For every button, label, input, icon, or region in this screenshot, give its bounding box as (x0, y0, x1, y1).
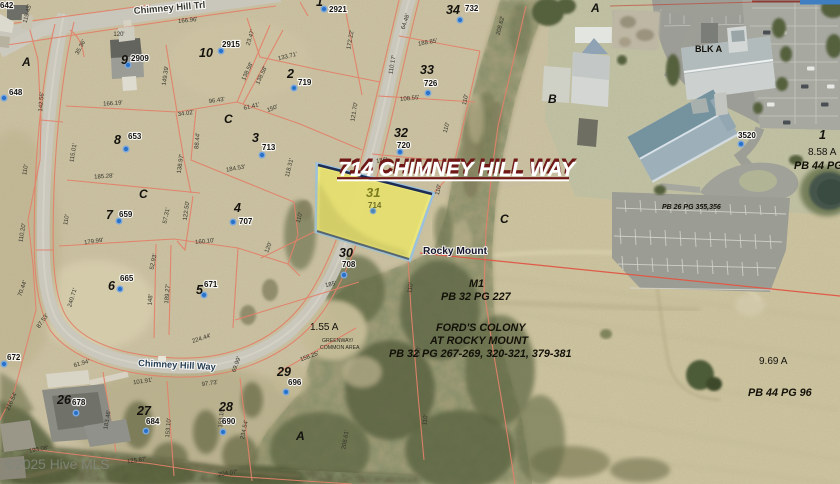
svg-text:FORD'S COLONY: FORD'S COLONY (436, 322, 527, 334)
svg-text:659: 659 (119, 210, 133, 219)
svg-text:29: 29 (276, 365, 291, 379)
svg-text:648: 648 (9, 88, 23, 97)
svg-text:©2025 Hive MLS: ©2025 Hive MLS (5, 457, 110, 472)
svg-text:C: C (500, 212, 509, 226)
svg-text:1.55 A: 1.55 A (310, 322, 339, 333)
svg-text:A: A (21, 55, 31, 69)
svg-text:PB 44 PG 96: PB 44 PG 96 (748, 387, 813, 399)
svg-text:5: 5 (196, 283, 204, 297)
svg-text:672: 672 (7, 353, 21, 362)
svg-text:2921: 2921 (329, 5, 347, 14)
svg-text:665: 665 (120, 274, 134, 283)
svg-text:1: 1 (819, 128, 826, 142)
svg-text:4: 4 (233, 201, 241, 215)
svg-text:1: 1 (316, 0, 323, 9)
svg-text:671: 671 (204, 280, 218, 289)
svg-text:8.58 A: 8.58 A (808, 147, 837, 158)
svg-text:708: 708 (342, 260, 356, 269)
svg-text:2909: 2909 (131, 54, 149, 63)
svg-text:707: 707 (239, 217, 253, 226)
svg-text:31: 31 (366, 185, 380, 200)
svg-text:2915: 2915 (222, 40, 240, 49)
svg-text:PB 44 PG: PB 44 PG (794, 160, 840, 172)
svg-text:3520: 3520 (738, 131, 756, 140)
svg-text:732: 732 (465, 4, 479, 13)
svg-text:6: 6 (108, 279, 116, 293)
svg-text:10: 10 (199, 46, 213, 60)
svg-text:9: 9 (121, 53, 128, 67)
svg-text:30: 30 (339, 246, 353, 260)
svg-text:2: 2 (286, 67, 294, 81)
svg-text:COMMON AREA: COMMON AREA (320, 345, 360, 351)
svg-text:34: 34 (446, 3, 460, 17)
svg-text:8: 8 (114, 133, 121, 147)
svg-text:M1: M1 (469, 278, 484, 290)
svg-text:678: 678 (72, 398, 86, 407)
svg-text:714: 714 (368, 201, 382, 210)
svg-text:C: C (224, 112, 233, 126)
svg-text:9.69 A: 9.69 A (759, 356, 788, 367)
svg-text:32: 32 (394, 126, 408, 140)
svg-text:PB 32 PG 227: PB 32 PG 227 (441, 291, 512, 303)
svg-text:33: 33 (420, 63, 434, 77)
svg-text:653: 653 (128, 132, 142, 141)
svg-text:B: B (548, 92, 557, 106)
svg-text:7: 7 (106, 208, 114, 222)
svg-text:726: 726 (424, 79, 438, 88)
svg-text:C: C (139, 187, 148, 201)
svg-text:684: 684 (146, 417, 160, 426)
svg-text:696: 696 (288, 378, 302, 387)
svg-text:BLK A: BLK A (695, 44, 723, 54)
svg-text:719: 719 (298, 78, 312, 87)
svg-text:PB 26 PG 355,356: PB 26 PG 355,356 (662, 204, 721, 211)
svg-text:26: 26 (56, 393, 72, 407)
svg-text:713: 713 (262, 143, 276, 152)
svg-text:27: 27 (136, 404, 152, 418)
svg-text:642: 642 (0, 1, 14, 10)
svg-text:A: A (295, 429, 305, 443)
svg-text:120': 120' (113, 32, 124, 38)
svg-text:3: 3 (252, 131, 259, 145)
svg-text:AT ROCKY MOUNT: AT ROCKY MOUNT (429, 335, 529, 347)
svg-text:GREENWAY/: GREENWAY/ (322, 338, 354, 344)
svg-text:Rocky Mount: Rocky Mount (423, 246, 488, 257)
svg-text:A: A (590, 1, 600, 15)
svg-text:148': 148' (148, 294, 155, 306)
